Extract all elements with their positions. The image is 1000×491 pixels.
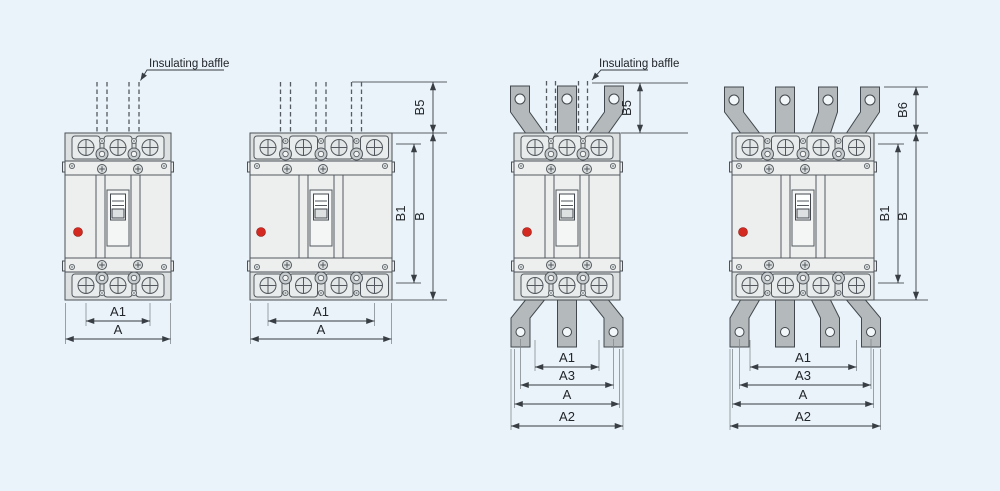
baffle-label: Insulating baffle: [149, 58, 229, 70]
breaker-body: [730, 133, 877, 300]
dim-label-a3: A3: [795, 368, 811, 383]
dim-label-a: A: [563, 387, 572, 402]
dim-label-b5: B5: [619, 100, 634, 116]
bottom-terminal-tabs: [730, 300, 881, 347]
terminal-tab: [847, 87, 880, 133]
drawing-3pole-baffle: Insulating baffle A1 A: [63, 58, 230, 344]
terminal-tab: [558, 86, 577, 133]
dim-label-a: A: [799, 387, 808, 402]
tab-hole-icon: [865, 95, 875, 105]
tab-hole-icon: [735, 328, 744, 337]
insulating-baffle-lines: [97, 82, 139, 140]
drawing-3pole-plugin: Insulating baffle B5 A1 A3 A A2: [511, 58, 689, 430]
top-terminal-tabs: [725, 87, 880, 133]
dim-label-a: A: [317, 322, 326, 337]
dim-label-b5: B5: [412, 100, 427, 116]
terminal-tab: [812, 87, 838, 133]
drawing-4pole-baffle: B5 B1 B A1 A: [248, 82, 448, 344]
terminal-tab: [511, 300, 545, 347]
diagram-canvas: Insulating baffle A1 A B5 B1 B: [0, 0, 1000, 491]
tab-hole-icon: [826, 328, 835, 337]
breaker-body: [512, 133, 623, 300]
baffle-leader-line: [141, 70, 225, 81]
top-terminal-tabs: [511, 86, 624, 133]
tab-hole-icon: [823, 95, 833, 105]
terminal-tab: [558, 300, 577, 347]
dim-label-a1: A1: [795, 350, 811, 365]
dim-label-b6: B6: [895, 102, 910, 118]
bottom-terminal-tabs: [511, 300, 623, 347]
breaker-body: [248, 133, 395, 300]
dim-label-b: B: [412, 212, 427, 221]
tab-hole-icon: [516, 328, 525, 337]
tab-hole-icon: [515, 94, 525, 104]
tab-hole-icon: [781, 328, 790, 337]
baffle-label: Insulating baffle: [599, 58, 679, 70]
terminal-tab: [725, 87, 760, 133]
dim-label-a: A: [114, 322, 123, 337]
tab-hole-icon: [729, 95, 739, 105]
dim-label-a3: A3: [559, 368, 575, 383]
baffle-leader-line: [592, 70, 648, 80]
terminal-tab: [511, 86, 545, 133]
terminal-tab: [590, 300, 624, 347]
dim-label-a1: A1: [110, 304, 126, 319]
terminal-tab: [847, 300, 881, 347]
terminal-tab: [776, 300, 795, 347]
dim-label-a1: A1: [559, 350, 575, 365]
terminal-tab: [730, 300, 760, 347]
dim-label-b: B: [895, 212, 910, 221]
tab-hole-icon: [780, 95, 790, 105]
drawing-4pole-plugin: B6 B1 B A1 A3 A A2: [725, 87, 929, 430]
terminal-tab: [776, 87, 795, 133]
mccb-dimension-diagram: Insulating baffle A1 A B5 B1 B: [0, 0, 1000, 491]
breaker-body: [63, 133, 174, 300]
tab-hole-icon: [609, 328, 618, 337]
dim-label-a2: A2: [795, 409, 811, 424]
tab-hole-icon: [609, 94, 619, 104]
tab-hole-icon: [563, 328, 572, 337]
dim-label-b1: B1: [393, 206, 408, 222]
tab-hole-icon: [562, 94, 572, 104]
tab-hole-icon: [867, 328, 876, 337]
dim-label-b1: B1: [877, 206, 892, 222]
terminal-tab: [812, 300, 840, 347]
dim-label-a1: A1: [313, 304, 329, 319]
dim-label-a2: A2: [559, 409, 575, 424]
insulating-baffle-lines: [281, 82, 362, 140]
